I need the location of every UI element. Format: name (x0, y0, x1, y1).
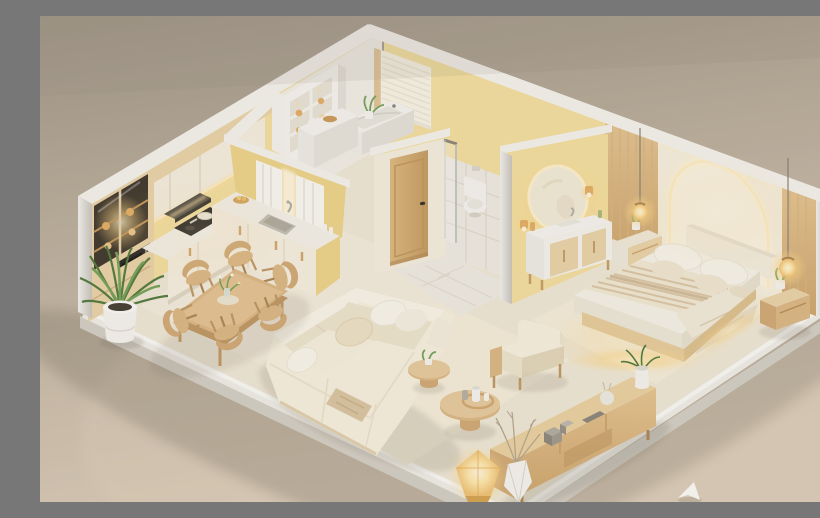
light-overlays (40, 16, 820, 502)
apartment-isometric-render: Isometric 3D render of a small apartment… (40, 16, 820, 502)
render-canvas: Isometric 3D render of a small apartment… (40, 16, 820, 502)
